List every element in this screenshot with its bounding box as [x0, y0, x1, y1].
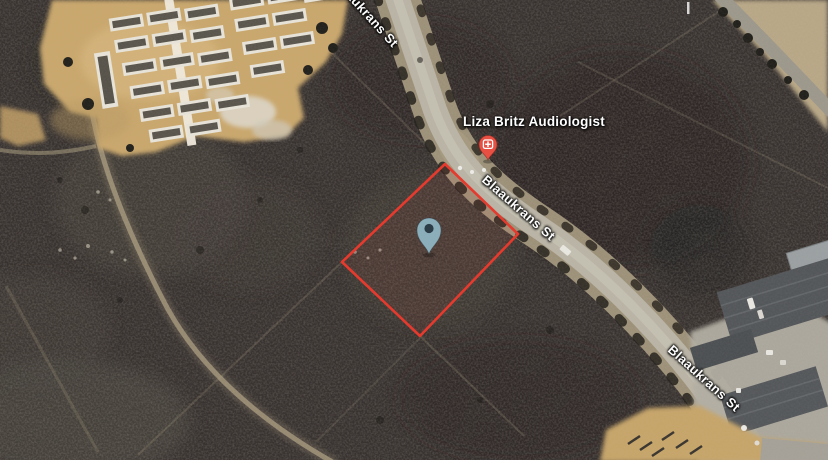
map-canvas[interactable]: Blaaukrans St Blaaukrans St Blaaukrans S… — [0, 0, 828, 460]
marker-hole — [424, 224, 433, 233]
satellite-imagery — [0, 0, 828, 460]
poi-label[interactable]: Liza Britz Audiologist — [463, 114, 605, 129]
